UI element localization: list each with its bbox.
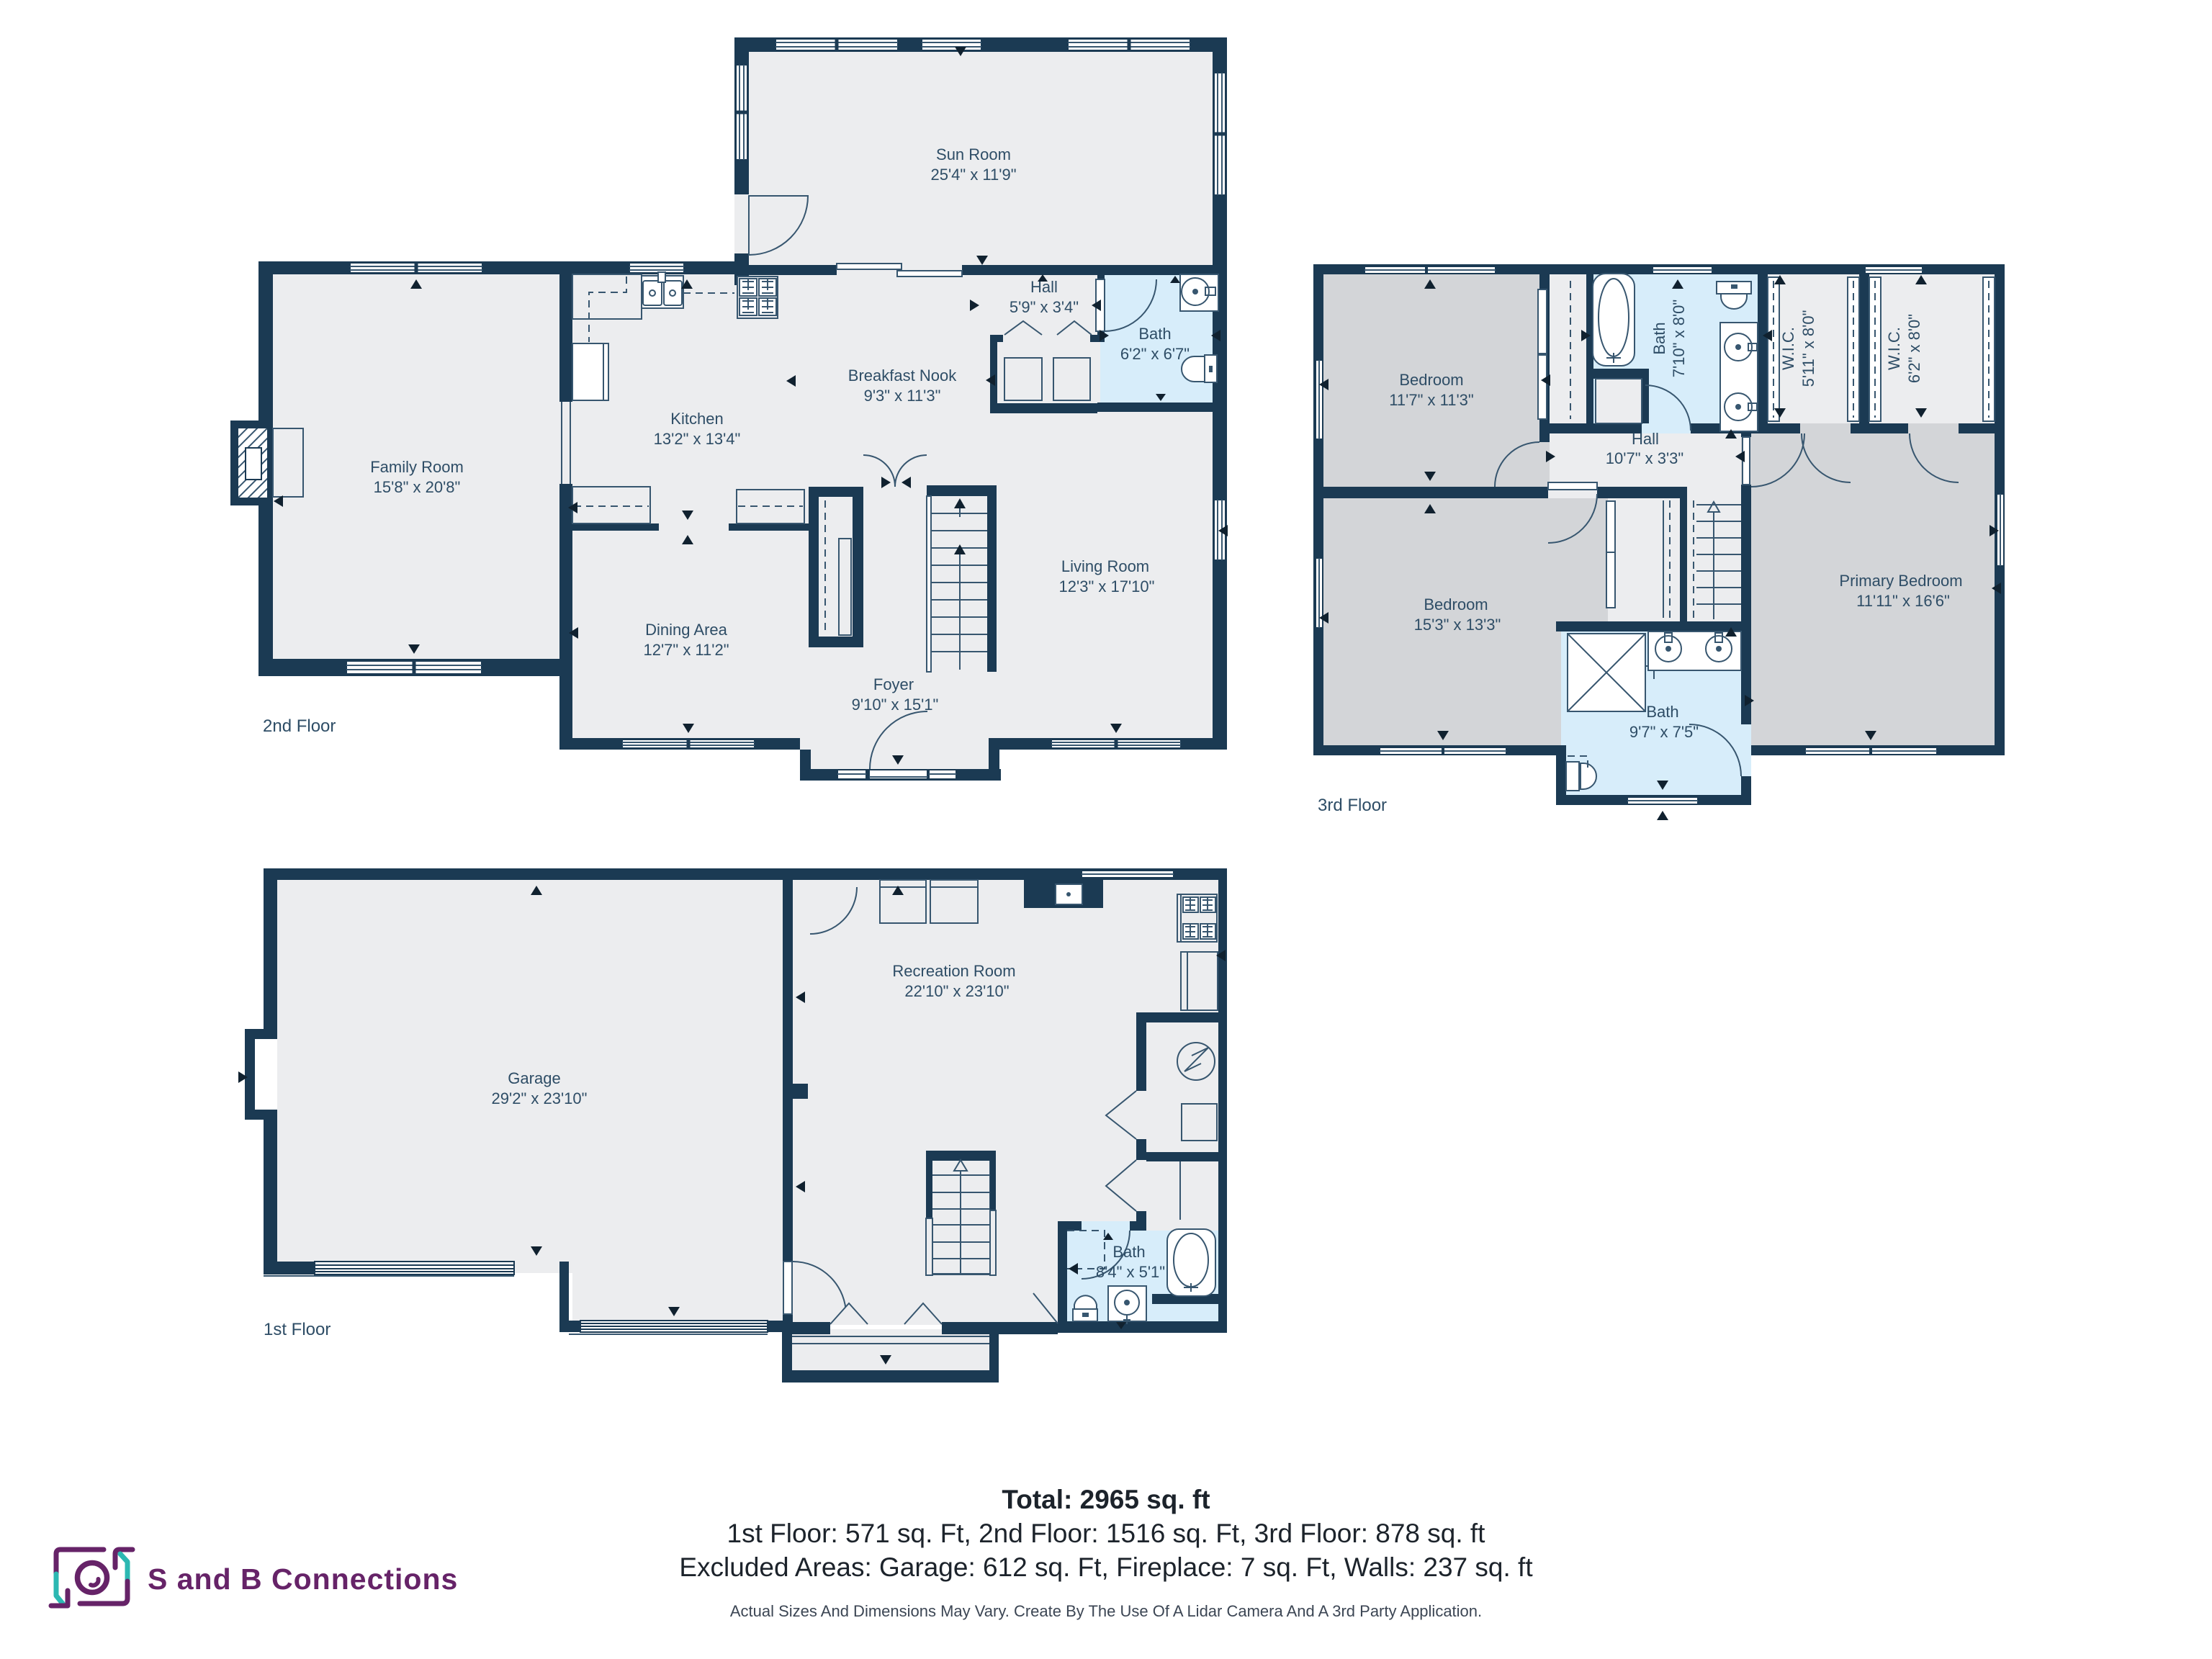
svg-text:Bath: Bath — [1138, 325, 1171, 343]
svg-text:W.I.C.: W.I.C. — [1885, 327, 1903, 370]
svg-text:6'2" x 8'0": 6'2" x 8'0" — [1905, 314, 1923, 383]
svg-text:Actual Sizes And Dimensions Ma: Actual Sizes And Dimensions May Vary. Cr… — [730, 1602, 1482, 1620]
svg-text:Family Room: Family Room — [370, 458, 464, 476]
svg-text:Total: 2965 sq. ft: Total: 2965 sq. ft — [1002, 1485, 1210, 1514]
svg-text:1st Floor: 1st Floor — [264, 1320, 331, 1339]
svg-text:Hall: Hall — [1632, 430, 1659, 448]
svg-text:Living Room: Living Room — [1061, 557, 1149, 575]
svg-text:9'10" x 15'1": 9'10" x 15'1" — [852, 696, 939, 714]
svg-text:25'4" x 11'9": 25'4" x 11'9" — [930, 166, 1016, 184]
svg-text:5'9" x 3'4": 5'9" x 3'4" — [1010, 298, 1079, 316]
svg-text:Bath: Bath — [1650, 322, 1668, 354]
svg-text:13'2" x 13'4": 13'2" x 13'4" — [654, 430, 741, 448]
svg-text:Foyer: Foyer — [873, 675, 914, 693]
svg-text:3rd Floor: 3rd Floor — [1318, 796, 1387, 815]
svg-text:11'11" x 16'6": 11'11" x 16'6" — [1856, 592, 1950, 610]
svg-text:2nd Floor: 2nd Floor — [263, 716, 336, 736]
svg-text:Sun Room: Sun Room — [936, 145, 1011, 163]
svg-text:W.I.C.: W.I.C. — [1779, 327, 1797, 370]
svg-text:Bath: Bath — [1112, 1243, 1145, 1261]
svg-text:Bedroom: Bedroom — [1424, 595, 1488, 613]
svg-text:Recreation Room: Recreation Room — [892, 962, 1015, 980]
svg-text:12'3" x 17'10": 12'3" x 17'10" — [1059, 577, 1155, 595]
svg-text:8'4" x 5'1": 8'4" x 5'1" — [1096, 1263, 1165, 1281]
svg-text:10'7" x 3'3": 10'7" x 3'3" — [1606, 449, 1683, 467]
svg-text:Excluded Areas: Garage: 612 sq: Excluded Areas: Garage: 612 sq. Ft, Fire… — [679, 1552, 1533, 1582]
svg-text:6'2" x 6'7": 6'2" x 6'7" — [1120, 345, 1190, 363]
svg-text:5'11" x 8'0": 5'11" x 8'0" — [1799, 310, 1817, 387]
svg-text:Bath: Bath — [1646, 703, 1678, 721]
svg-text:Kitchen: Kitchen — [670, 410, 723, 428]
svg-text:Bedroom: Bedroom — [1399, 371, 1463, 389]
svg-text:1st Floor: 571 sq. Ft, 2nd Flo: 1st Floor: 571 sq. Ft, 2nd Floor: 1516 s… — [727, 1519, 1486, 1548]
svg-text:S and B Connections: S and B Connections — [148, 1563, 458, 1596]
svg-text:22'10" x 23'10": 22'10" x 23'10" — [904, 982, 1009, 1000]
svg-text:7'10" x 8'0": 7'10" x 8'0" — [1670, 300, 1688, 377]
svg-text:12'7" x 11'2": 12'7" x 11'2" — [643, 641, 729, 659]
svg-text:Garage: Garage — [508, 1069, 560, 1087]
svg-text:11'7" x 11'3": 11'7" x 11'3" — [1389, 391, 1473, 409]
svg-text:Primary Bedroom: Primary Bedroom — [1839, 572, 1962, 590]
svg-text:Dining Area: Dining Area — [645, 621, 728, 639]
svg-text:15'3" x 13'3": 15'3" x 13'3" — [1414, 616, 1501, 634]
svg-text:Breakfast Nook: Breakfast Nook — [848, 367, 957, 385]
svg-text:9'7" x 7'5": 9'7" x 7'5" — [1629, 723, 1699, 741]
svg-text:29'2" x 23'10": 29'2" x 23'10" — [492, 1089, 588, 1107]
svg-text:15'8" x 20'8": 15'8" x 20'8" — [374, 478, 461, 496]
svg-text:9'3" x 11'3": 9'3" x 11'3" — [864, 387, 941, 405]
